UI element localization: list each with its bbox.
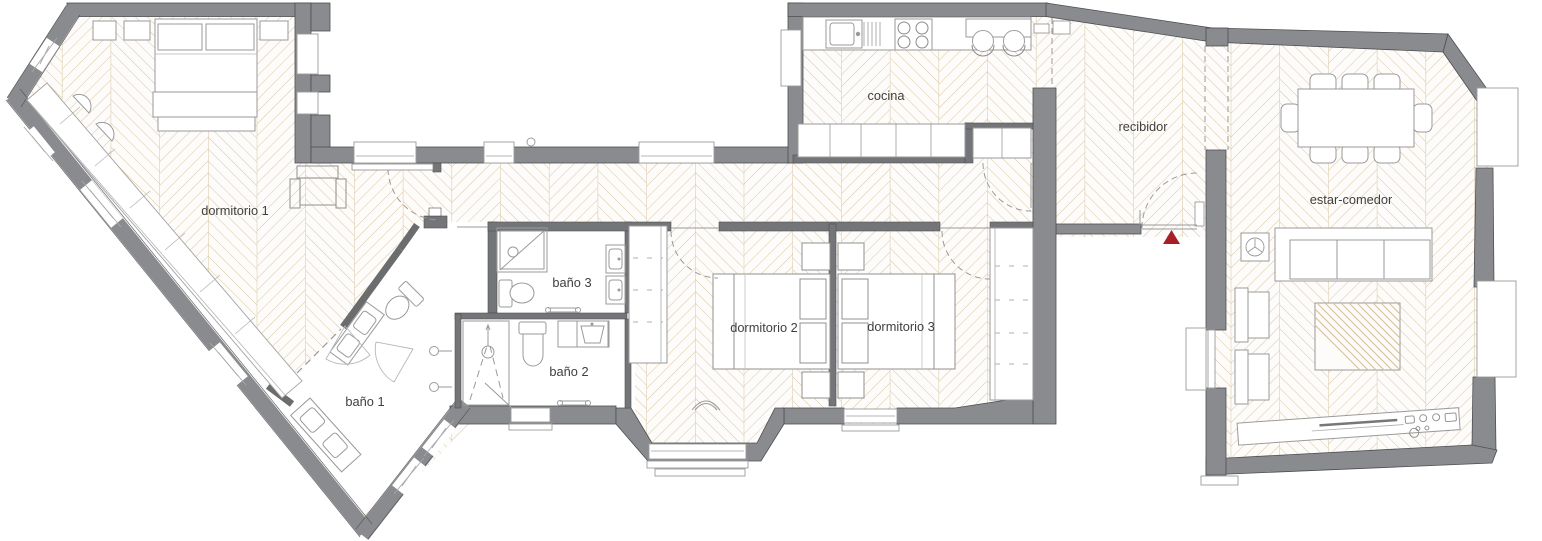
svg-text:baño 1: baño 1 — [345, 394, 384, 409]
svg-text:recibidor: recibidor — [1118, 119, 1168, 134]
svg-text:cocina: cocina — [868, 88, 906, 103]
svg-text:estar-comedor: estar-comedor — [1310, 192, 1393, 207]
svg-text:baño 2: baño 2 — [549, 364, 588, 379]
svg-text:dormitorio 3: dormitorio 3 — [867, 319, 935, 334]
svg-text:dormitorio 2: dormitorio 2 — [730, 320, 798, 335]
svg-text:dormitorio 1: dormitorio 1 — [201, 203, 269, 218]
svg-text:baño 3: baño 3 — [552, 275, 591, 290]
